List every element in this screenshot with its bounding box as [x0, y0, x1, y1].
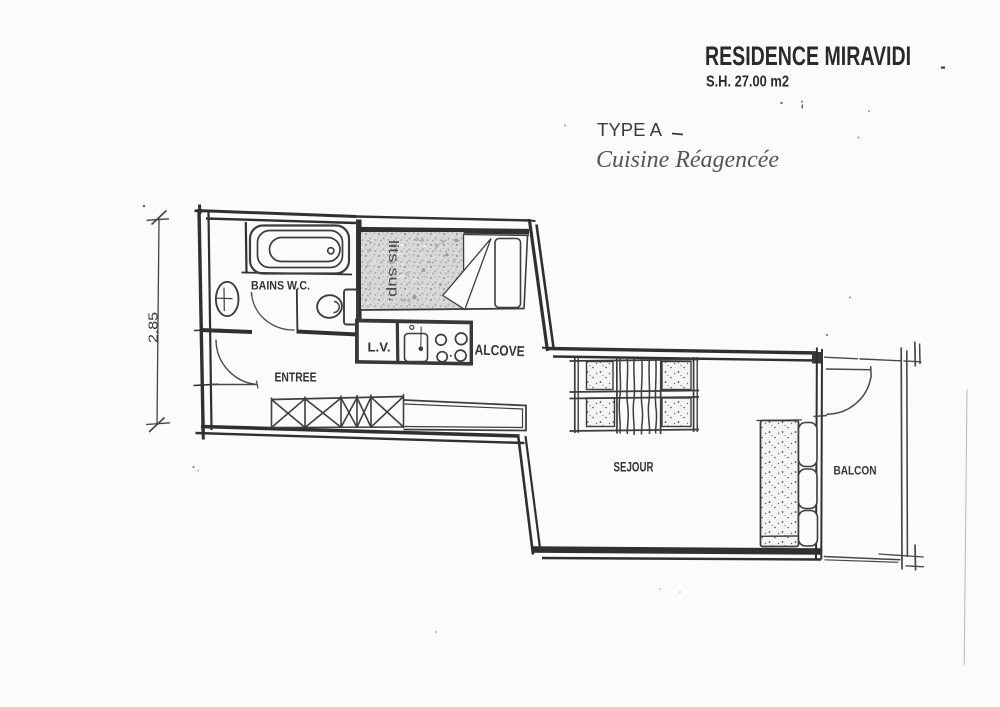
svg-text:2.85: 2.85 — [146, 312, 161, 343]
svg-text:BAINS W.C.: BAINS W.C. — [251, 279, 310, 293]
svg-text:RESIDENCE MIRAVIDI: RESIDENCE MIRAVIDI — [705, 41, 911, 71]
svg-text:Cuisine Réagencée: Cuisine Réagencée — [596, 147, 779, 173]
svg-text:lits sup.: lits sup. — [386, 240, 401, 302]
svg-text:ENTREE: ENTREE — [275, 370, 317, 385]
svg-text:L.V.: L.V. — [368, 340, 391, 355]
svg-text:ALCOVE: ALCOVE — [474, 343, 525, 361]
svg-text:SEJOUR: SEJOUR — [614, 460, 654, 475]
svg-text:BALCON: BALCON — [834, 464, 877, 478]
svg-text:S.H. 27.00 m2: S.H. 27.00 m2 — [706, 74, 789, 91]
svg-text:TYPE A: TYPE A — [597, 120, 662, 140]
